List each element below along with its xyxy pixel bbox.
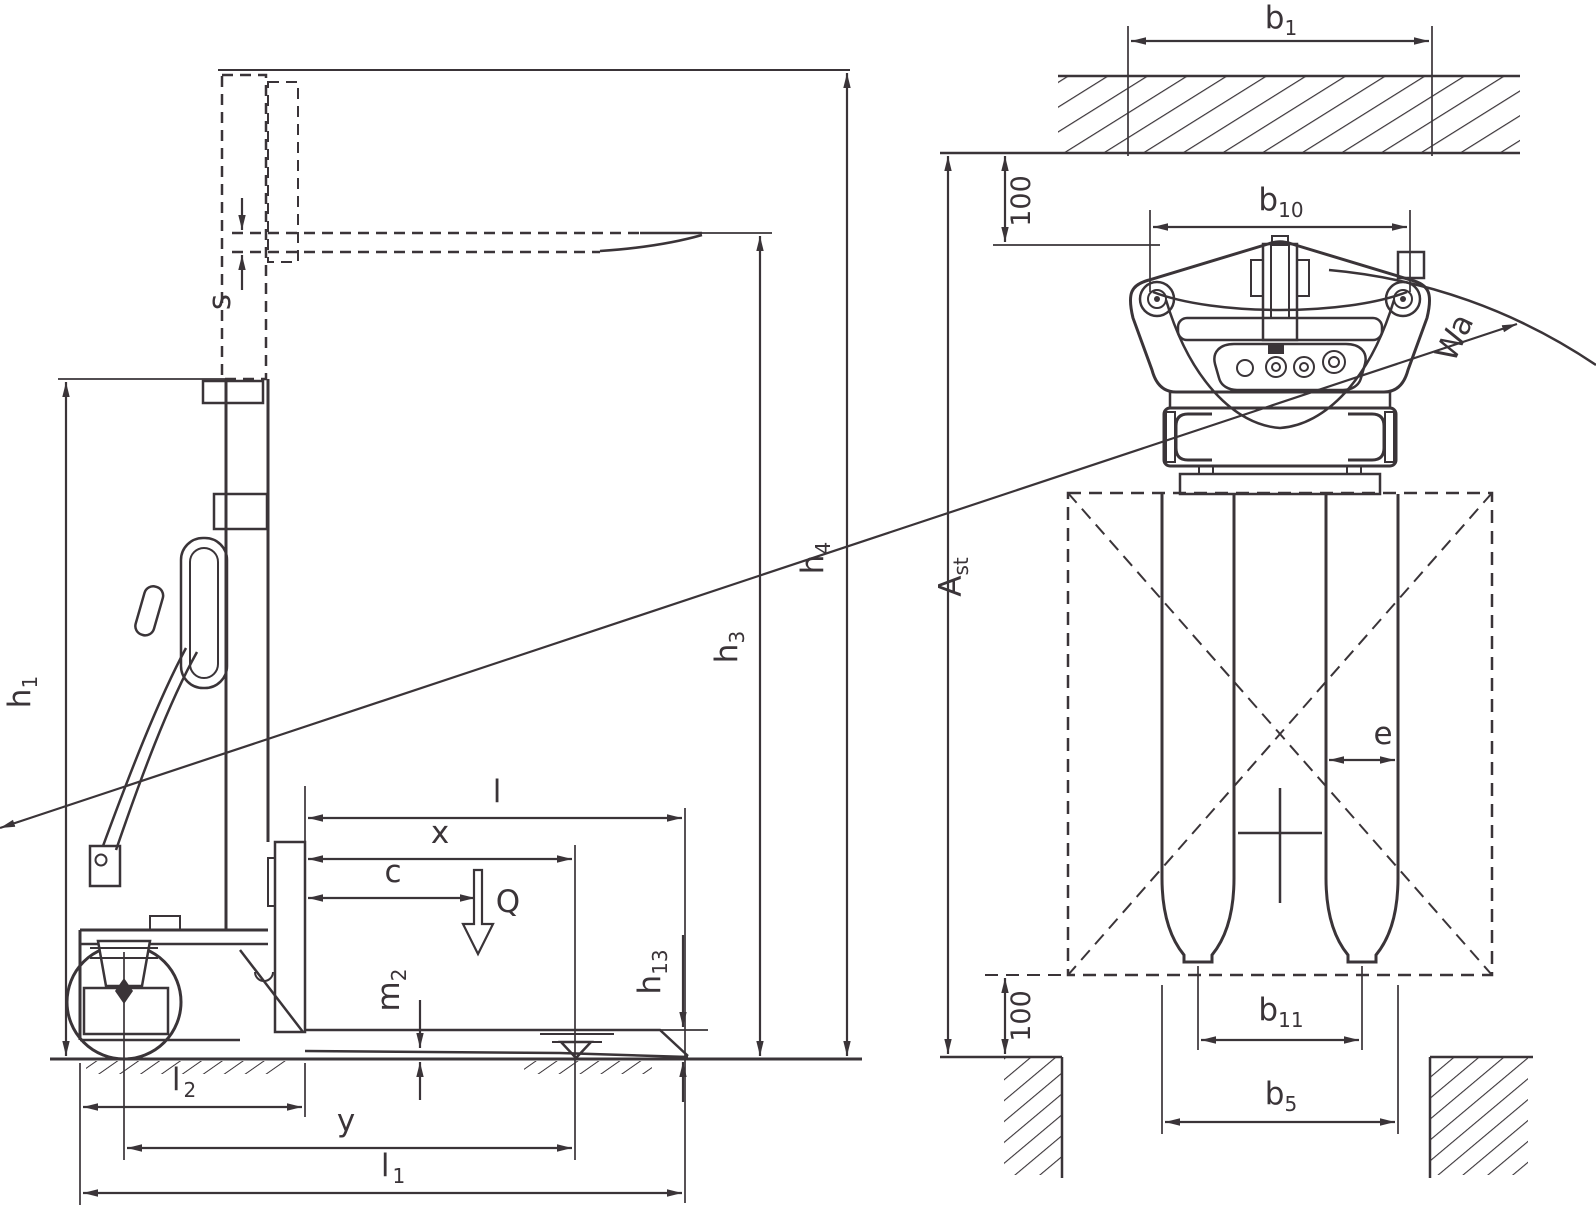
dim-100-top-label: 100 (1006, 175, 1037, 227)
dim-b11-label: b11 (1258, 992, 1303, 1032)
tiller-pivot (96, 855, 107, 866)
dim-y: y (127, 1103, 572, 1148)
control-panel (1214, 344, 1365, 390)
drive-wheel (67, 941, 181, 1160)
load-arrow (463, 870, 493, 954)
dim-h1-label: h1 (2, 676, 42, 708)
dim-ast: Ast (933, 156, 973, 1054)
mast-column-top (1251, 236, 1309, 340)
load-q: Q (463, 870, 520, 954)
dim-c: c (308, 854, 475, 898)
control-button (1323, 351, 1345, 373)
technical-drawing: h1 s l x c Q m2 (0, 0, 1596, 1211)
dim-x-label: x (431, 815, 449, 851)
overhead-wall (940, 76, 1520, 153)
handle-loop-outer (181, 538, 227, 688)
dim-m2: m2 (371, 969, 420, 1100)
dim-wa-label: Wa (1429, 309, 1482, 367)
control-switch (1268, 345, 1284, 354)
dim-l: l (305, 774, 685, 1203)
load-q-label: Q (496, 884, 520, 920)
control-button (1237, 360, 1253, 376)
dim-h13: h13 (632, 935, 708, 1102)
dim-clearance-top: 100 (993, 156, 1160, 245)
fork-carriage-top (1180, 466, 1380, 494)
handle-bar (1178, 318, 1382, 340)
dim-l-label: l (493, 774, 502, 810)
fork-carriage (268, 842, 305, 1032)
mast (203, 379, 268, 930)
dim-h13-label: h13 (632, 949, 672, 994)
dim-b5-label: b5 (1265, 1076, 1297, 1116)
dim-100-bottom-label: 100 (1006, 990, 1037, 1042)
dim-y-label: y (337, 1103, 355, 1139)
dim-ast-label: Ast (933, 557, 973, 597)
turning-radius: Wa (0, 270, 1596, 903)
mast-top-crossbar (203, 381, 263, 403)
tiller-hinge (90, 846, 120, 886)
dim-m2-label: m2 (371, 969, 411, 1012)
dim-b10-label: b10 (1258, 182, 1303, 222)
tiller-handle (90, 538, 227, 886)
mast-extended-dashed (218, 70, 850, 379)
stacker-dimension-diagram: h1 s l x c Q m2 (0, 0, 1596, 1211)
tiller-knob (133, 584, 165, 637)
body-corner-tab (1398, 252, 1424, 278)
dim-l1-label: l1 (381, 1148, 405, 1188)
dim-e: e (1329, 716, 1395, 760)
ground-hatch-left (86, 1061, 286, 1074)
dim-h3: h3 (700, 233, 772, 1056)
top-body (1130, 242, 1429, 428)
dim-b11: b11 (1198, 966, 1362, 1050)
fork-raised-dashed (232, 233, 702, 252)
dim-h3-label: h3 (709, 631, 749, 663)
dim-l1: l1 (83, 1148, 682, 1193)
fork-lowered (305, 1030, 688, 1057)
dim-s-label: s (202, 294, 238, 310)
dim-e-label: e (1373, 716, 1392, 752)
mast-clamp (214, 494, 267, 529)
dim-h4: h4 (795, 73, 847, 1056)
dim-l2: l2 (80, 1062, 305, 1205)
side-view: h1 s l x c Q m2 (2, 70, 862, 1205)
dim-clearance-bottom: 100 (985, 975, 1070, 1054)
dock-edge-right (1430, 1057, 1533, 1178)
dim-b1-label: b1 (1265, 0, 1297, 40)
dock-edge-left (940, 1057, 1062, 1178)
chassis-latch (150, 916, 180, 930)
top-view: Wa b1 100 b10 Ast e (0, 0, 1596, 1178)
ground-hatch-load (524, 1061, 652, 1074)
control-button (1294, 357, 1314, 377)
dim-c-label: c (384, 854, 401, 890)
control-button (1266, 357, 1286, 377)
